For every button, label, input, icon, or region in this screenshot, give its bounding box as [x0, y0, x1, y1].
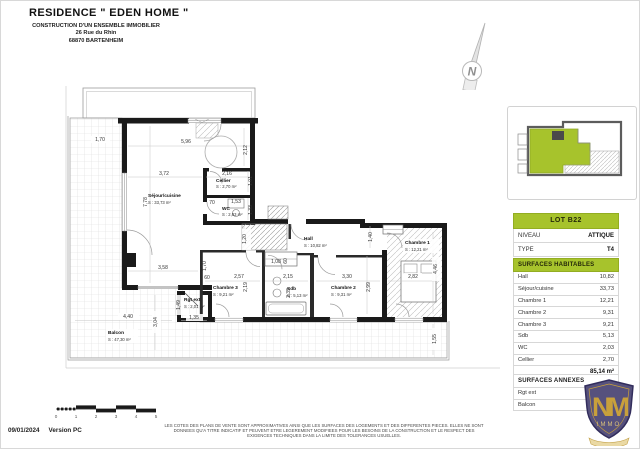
table-row: Chambre 39,21 — [513, 319, 619, 331]
row-value: ATTIQUE — [588, 233, 614, 239]
row-label: Séjour/cuisine — [518, 286, 554, 292]
table-row: WC2,03 — [513, 343, 619, 355]
row-value: 5,13 — [603, 333, 614, 339]
row-value: T4 — [607, 247, 614, 253]
scale-tick: 2 — [95, 414, 98, 419]
dimension-label: 2,12 — [243, 145, 249, 155]
dimension-label: 4,40 — [123, 314, 133, 320]
plan-date: 09/01/2024 — [8, 427, 40, 434]
scale-tick: 0 — [55, 414, 58, 419]
dimension-label: 70 — [209, 200, 215, 206]
roof-terrace-outline — [83, 88, 255, 118]
date-version: 09/01/2024 Version PC — [8, 427, 82, 434]
lot-info-table: LOT B22 NIVEAU ATTIQUE TYPE T4 — [513, 213, 619, 257]
dimension-label: 1,53 — [231, 199, 241, 205]
table-row: Chambre 112,21 — [513, 296, 619, 308]
dimension-label: 60 — [204, 275, 210, 281]
room-name: Chambre 2 — [331, 285, 356, 291]
agency-logo: NM IMMO — [578, 378, 640, 446]
row-label: Hall — [518, 274, 528, 280]
dimension-label: 2,39 — [286, 288, 292, 298]
logo-text: IMMO — [597, 422, 621, 428]
room-area: S : 2,01 m² — [184, 304, 205, 309]
scale-tick: 3 — [115, 414, 118, 419]
room-area: S : 47,30 m² — [108, 337, 131, 342]
dimension-label: 3,72 — [159, 171, 169, 177]
row-value: 12,21 — [600, 298, 614, 304]
room-area: S : 2,70 m² — [216, 184, 237, 189]
row-value: 10,82 — [600, 274, 614, 280]
key-plan — [508, 107, 634, 197]
plan-version: Version PC — [49, 427, 82, 434]
table-row: Chambre 29,31 — [513, 307, 619, 319]
dimension-label: 2,15 — [283, 274, 293, 280]
row-value: 9,21 — [603, 322, 614, 328]
room-name: Chambre 3 — [213, 285, 238, 291]
dimension-label: 60 — [283, 258, 289, 264]
dimension-label: 3,58 — [158, 265, 168, 271]
dimension-label: 4,46 — [433, 264, 439, 274]
row-value: 2,03 — [603, 345, 614, 351]
disclaimer-line: EXIGENCES TECHNIQUES DANS LA LIMITE DES … — [128, 433, 520, 438]
room-area: S : 10,82 m² — [304, 243, 327, 248]
table-row: Cellier2,70 — [513, 355, 619, 367]
row-label: Balcon — [518, 402, 535, 408]
table-row: Hall10,82 — [513, 272, 619, 284]
dimension-label: 2,16 — [222, 171, 232, 177]
dimension-label: 1,70 — [202, 261, 208, 271]
dimension-label: 1,40 — [368, 232, 374, 242]
dimension-label: 1,35 — [189, 315, 199, 321]
dimension-label: 3,04 — [153, 317, 159, 327]
dimension-label: 1,01 — [248, 176, 254, 186]
row-value: 9,31 — [603, 310, 614, 316]
scale-tick: 1 — [75, 414, 78, 419]
dimension-label: 2,57 — [234, 274, 244, 280]
table-row: Séjour/cuisine33,73 — [513, 284, 619, 296]
room-area: S : 2,03 m² — [222, 212, 243, 217]
plan-sheet: RESIDENCE " EDEN HOME " CONSTRUCTION D'U… — [0, 0, 640, 449]
dimension-label: 2,82 — [408, 274, 418, 280]
room-area: S : 33,73 m² — [148, 200, 171, 205]
row-label: Rgt ext — [518, 390, 536, 396]
scale-tick: 5 — [155, 414, 158, 419]
row-label: NIVEAU — [518, 233, 540, 239]
row-value: 33,73 — [600, 286, 614, 292]
dimension-label: 1,70 — [95, 137, 105, 143]
room-name: Séjour/cuisine — [148, 193, 181, 199]
dimension-label: 2,99 — [366, 282, 372, 292]
row-value: 2,70 — [603, 357, 614, 363]
dimension-label: 1,20 — [242, 234, 248, 244]
dimension-label: 1,49 — [176, 300, 182, 310]
row-label: Chambre 3 — [518, 322, 546, 328]
surfaces-habitables-table: SURFACES HABITABLES Hall10,82 Séjour/cui… — [513, 258, 619, 378]
row-label: TYPE — [518, 247, 534, 253]
row-label: Cellier — [518, 357, 534, 363]
dimension-label: 1,08 — [271, 259, 281, 265]
scale-bar: 0 1 2 3 4 5 — [50, 400, 166, 420]
table-row: NIVEAU ATTIQUE — [513, 229, 619, 243]
dimension-label: 7,78 — [143, 197, 149, 207]
room-area: S : 9,21 m² — [213, 292, 234, 297]
table-row: Sdb5,13 — [513, 331, 619, 343]
dimension-label: 3,30 — [342, 274, 352, 280]
row-label: WC — [518, 345, 527, 351]
room-name: Chambre 1 — [405, 240, 430, 246]
surfaces-habitables-title: SURFACES HABITABLES — [513, 258, 619, 272]
room-area: S : 9,31 m² — [331, 292, 352, 297]
scale-tick: 4 — [135, 414, 138, 419]
room-name: Balcon — [108, 330, 124, 336]
dimension-label: 5,96 — [181, 139, 191, 145]
dimension-label: 1,33 — [248, 205, 254, 215]
key-plan-card — [507, 106, 637, 200]
row-label: Chambre 2 — [518, 310, 546, 316]
row-label: Chambre 1 — [518, 298, 546, 304]
room-name: Rgt ext — [184, 297, 201, 303]
disclaimer: LES COTES DES PLANS DE VENTE SONT APPROX… — [128, 423, 520, 438]
logo-monogram: NM — [592, 392, 628, 422]
lot-title: LOT B22 — [513, 213, 619, 229]
room-area: S : 12,21 m² — [405, 247, 428, 252]
table-row: TYPE T4 — [513, 243, 619, 257]
room-name: Hall — [304, 236, 313, 242]
dimension-label: 1,55 — [432, 334, 438, 344]
row-label: Sdb — [518, 333, 528, 339]
dimension-label: 2,19 — [243, 282, 249, 292]
